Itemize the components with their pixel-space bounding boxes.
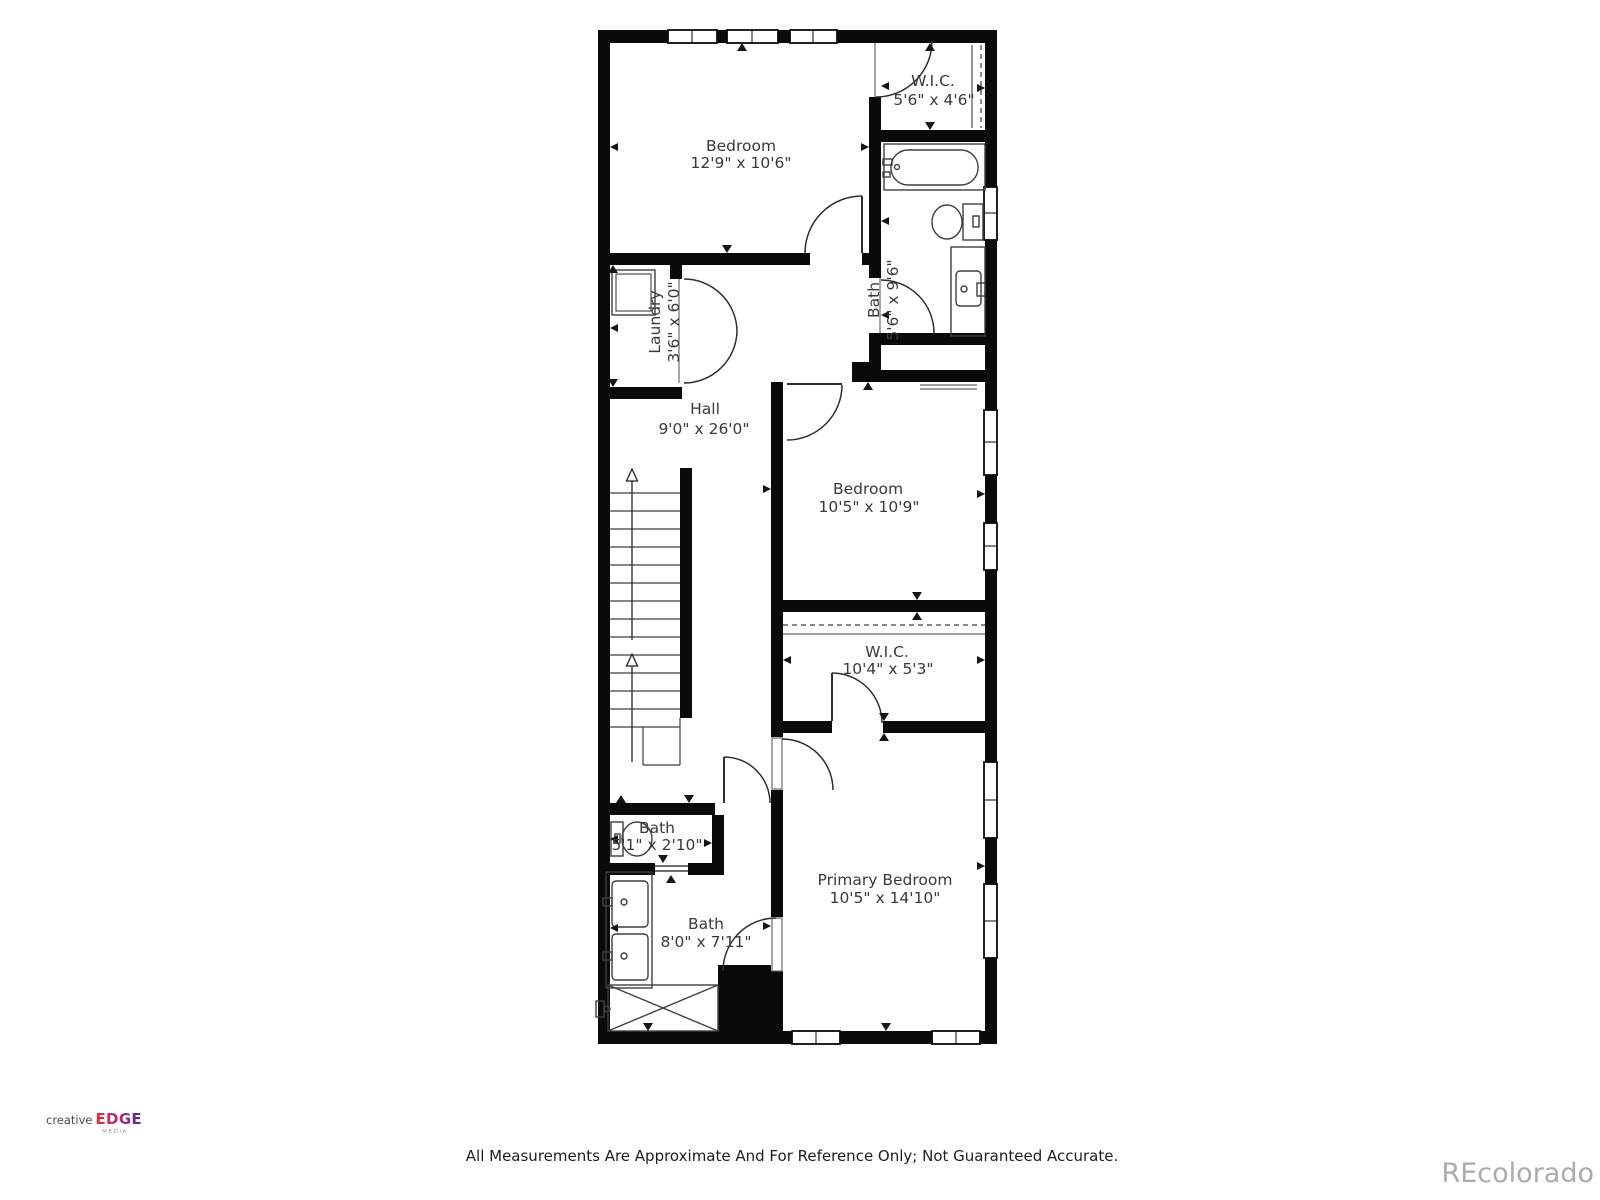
pocket-door-icon [655, 866, 688, 871]
door-swing-icon [805, 196, 862, 253]
closet-shelf-icon [783, 625, 985, 634]
double-door-swing-icon [679, 279, 737, 383]
door-swing-icon [772, 738, 833, 790]
room-label-bedroom1-dims: 12'9" x 10'6" [691, 154, 792, 172]
room-label-bath3-dims: 5'1" x 2'10" [611, 836, 702, 854]
window-icon [984, 762, 997, 838]
room-label-bath2-dims: 8'0" x 7'11" [660, 933, 751, 951]
window-icon [984, 523, 997, 570]
room-label-bath3-name: Bath [639, 819, 675, 837]
room-label-bedroom1-name: Bedroom [706, 137, 776, 155]
room-label-wic1-dims: 5'6" x 4'6" [893, 91, 974, 109]
room-label-bedroom2-dims: 10'5" x 10'9" [819, 498, 920, 516]
window-icon [668, 30, 717, 43]
window-icon [727, 30, 778, 43]
room-label-wic1-name: W.I.C. [911, 72, 955, 90]
room-label-wic2-name: W.I.C. [865, 643, 909, 661]
stairs-up-arrow-icon [627, 654, 638, 762]
logo-edge-text: EDGE [96, 1110, 142, 1128]
recolorado-watermark: REcolorado [1441, 1158, 1594, 1189]
toilet-icon [932, 204, 983, 240]
window-icon [984, 884, 997, 958]
window-icon [984, 410, 997, 475]
closet-track-icon [920, 385, 977, 389]
logo-media-text: MEDIA [46, 1129, 128, 1135]
creative-edge-media-logo: creative EDGE MEDIA [46, 1110, 128, 1135]
door-swing-icon [832, 673, 882, 723]
room-label-primary-name: Primary Bedroom [818, 871, 953, 889]
room-label-bath1-name: Bath [865, 282, 883, 318]
room-label-hall-name: Hall [690, 400, 720, 418]
room-label-wic2-dims: 10'4" x 5'3" [842, 660, 933, 678]
shower-icon [596, 985, 718, 1031]
room-label-primary-dims: 10'5" x 14'10" [830, 889, 941, 907]
floor-plan: Bedroom 12'9" x 10'6" W.I.C. 5'6" x 4'6"… [0, 0, 1600, 1200]
door-swing-icon [724, 757, 770, 803]
stairs [610, 469, 680, 765]
stairs-up-arrow-icon [627, 469, 638, 640]
room-label-laundry-dims: 3'6" x 6'0" [665, 281, 683, 362]
vanity-sink-icon [951, 247, 985, 336]
window-icon [790, 30, 837, 43]
window-icon [932, 1031, 980, 1044]
double-vanity-icon [603, 872, 652, 988]
logo-creative-text: creative [46, 1113, 93, 1127]
measurements-disclaimer: All Measurements Are Approximate And For… [0, 1147, 1584, 1165]
room-label-bedroom2-name: Bedroom [833, 480, 903, 498]
room-label-hall-dims: 9'0" x 26'0" [658, 420, 749, 438]
door-swing-icon [787, 384, 842, 440]
window-icon [984, 187, 997, 240]
bathtub-icon [883, 144, 985, 190]
room-label-laundry-name: Laundry [646, 290, 664, 353]
room-label-bath1-dims: 5'6" x 9'6" [884, 259, 902, 340]
window-icon [792, 1031, 840, 1044]
room-label-bath2-name: Bath [688, 915, 724, 933]
